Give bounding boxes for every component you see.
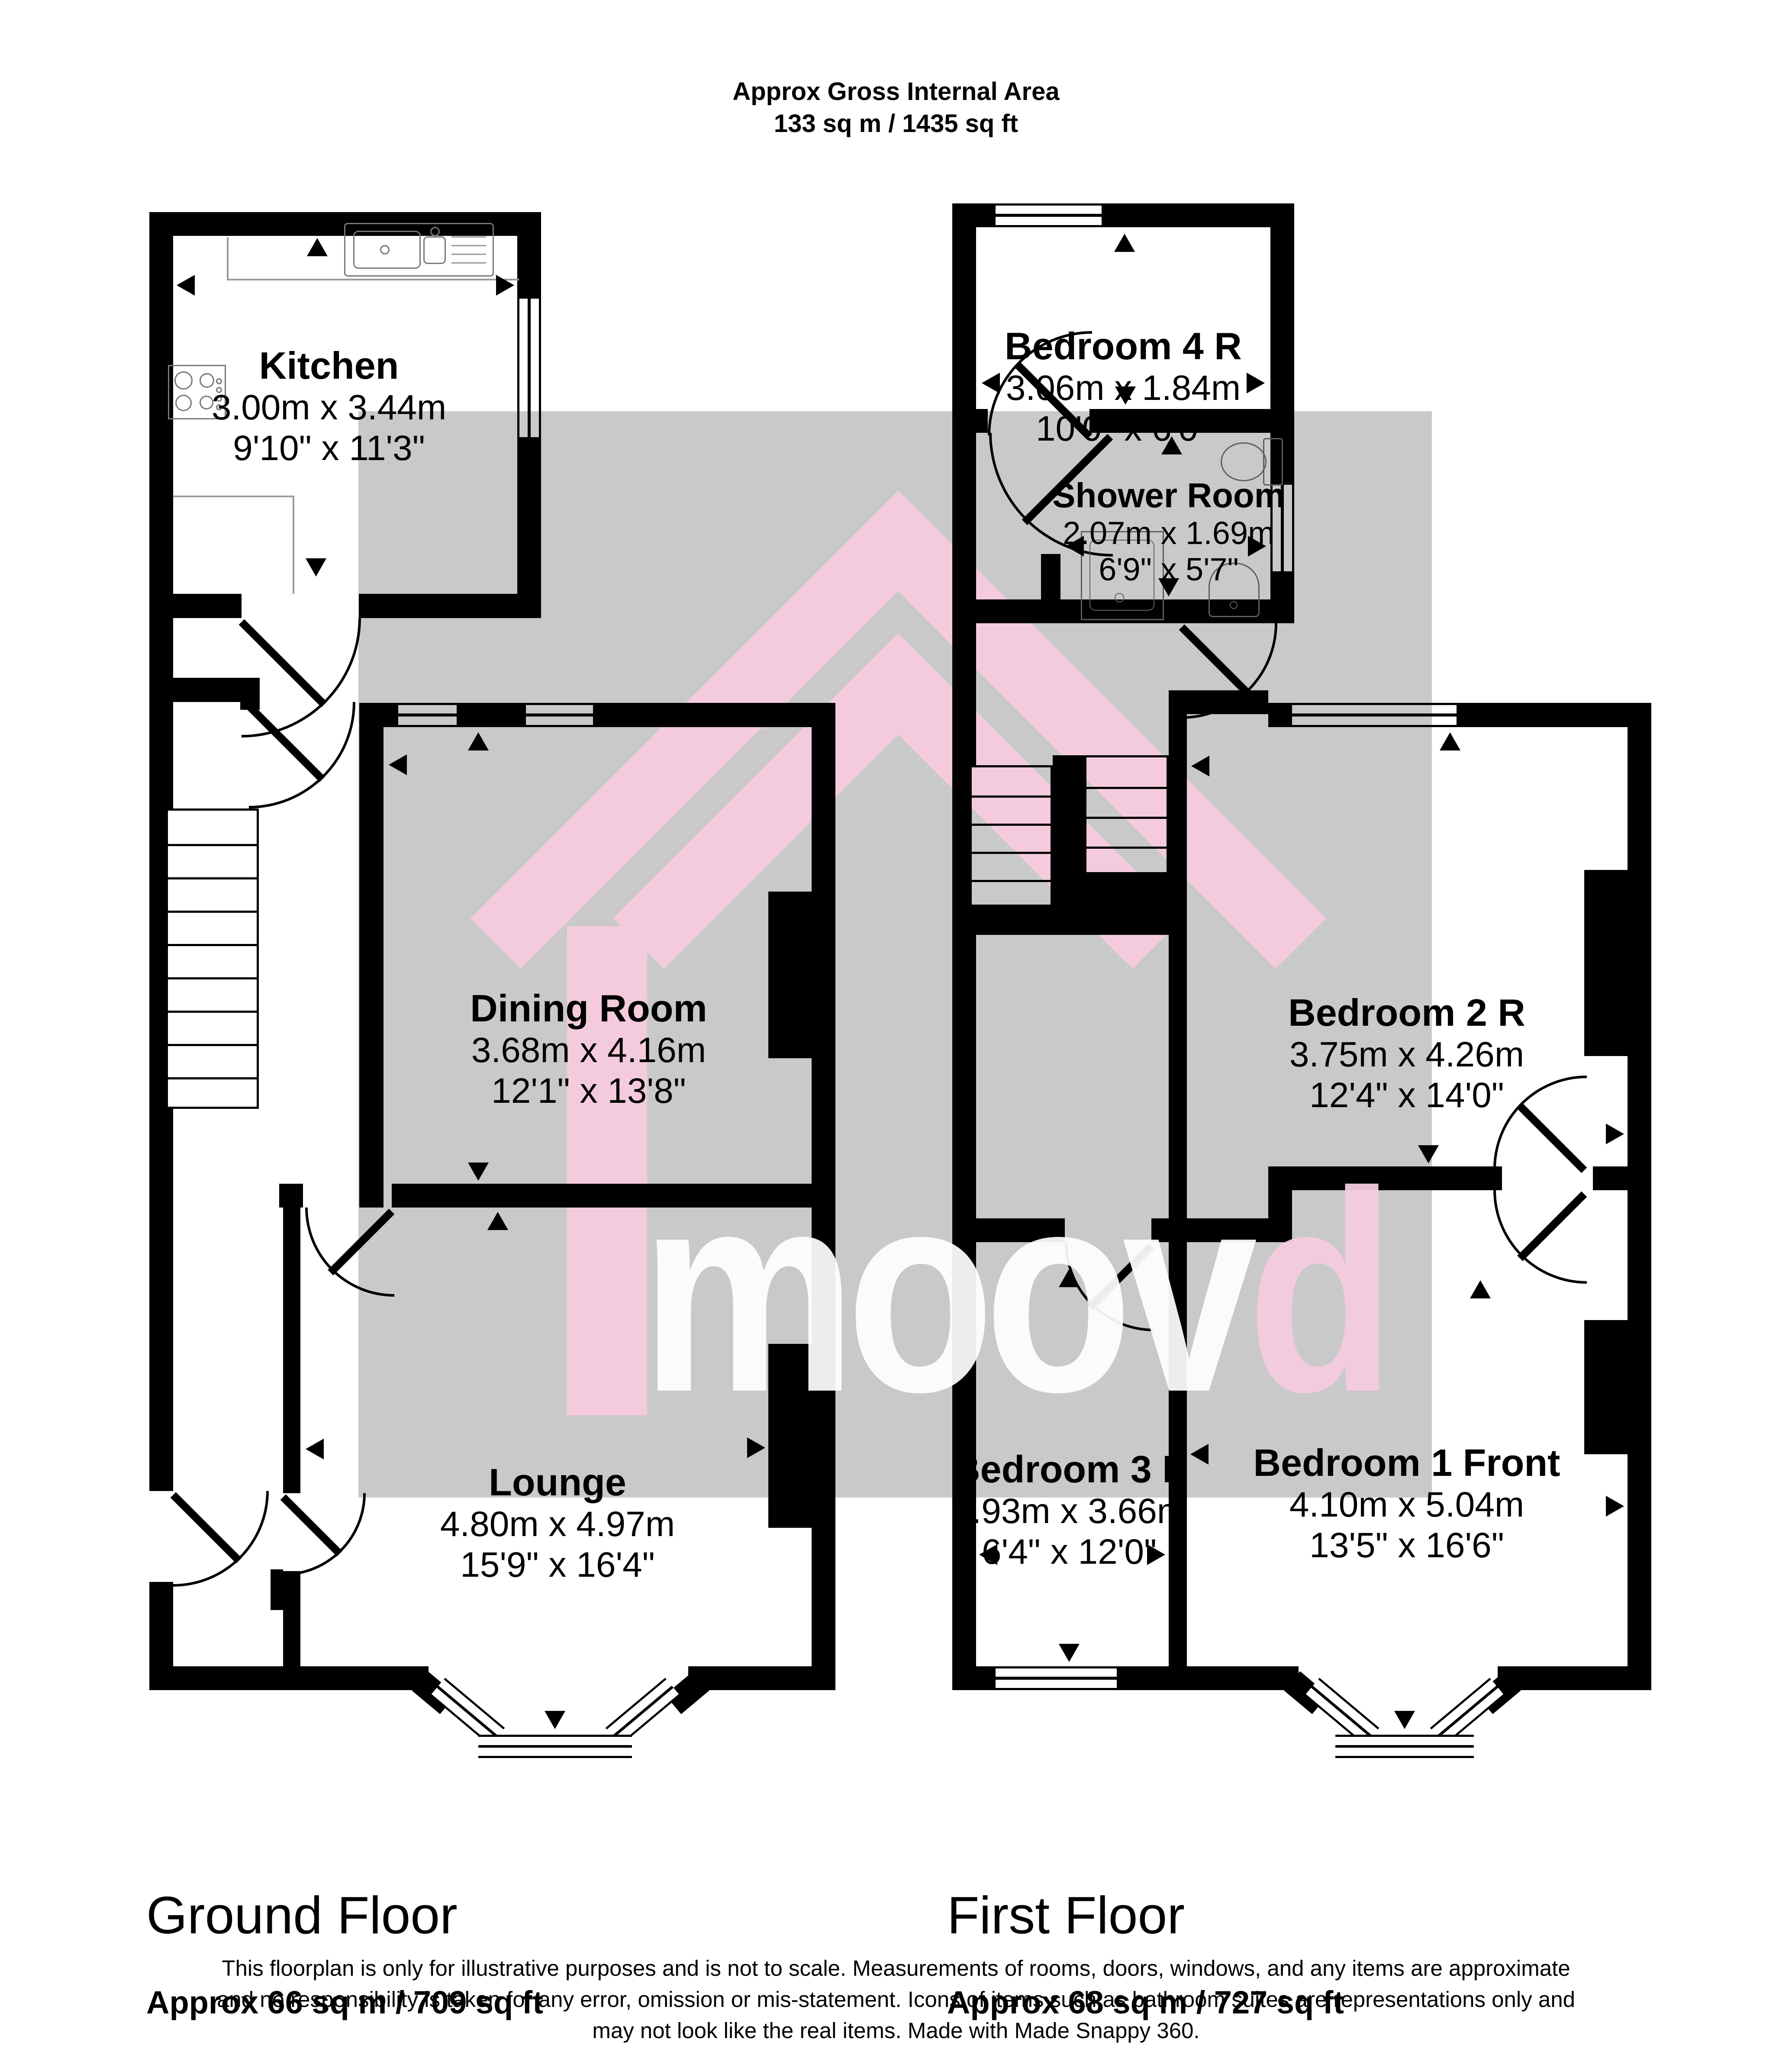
wall <box>384 703 398 727</box>
room-dims-metric: 4.10m x 5.04m <box>1169 1485 1645 1525</box>
measure-arrow-right <box>790 963 809 984</box>
measure-arrow-left <box>1191 756 1209 776</box>
wall <box>952 1666 996 1690</box>
wall <box>952 203 996 227</box>
stair-tread <box>1086 787 1167 789</box>
stair-tread <box>972 796 1051 798</box>
floorplan-canvas: Approx Gross Internal Area 133 sq m / 14… <box>0 0 1792 2058</box>
stair-tread <box>168 977 257 979</box>
measure-arrow-left <box>177 275 195 296</box>
stair-tread <box>1086 817 1167 819</box>
room-label-shower-room: Shower Room 2.07m x 1.69m 6'9" x 5'7" <box>931 476 1407 588</box>
stair-tread <box>972 880 1051 882</box>
gross-area-value: 133 sq m / 1435 sq ft <box>0 108 1792 140</box>
chimney-breast <box>1584 1320 1628 1454</box>
room-dims-imperial: 12'1" x 13'8" <box>351 1071 827 1111</box>
sink-drain <box>380 245 390 254</box>
disclaimer-line-3: may not look like the real items. Made w… <box>0 2015 1792 2046</box>
bay-window <box>1335 1735 1474 1758</box>
room-dims-imperial: 9'10" x 11'3" <box>91 428 567 469</box>
measure-arrow-left <box>306 1439 324 1459</box>
wall <box>359 703 384 1208</box>
window <box>996 1666 1117 1690</box>
stairs-first-floor-left-flight <box>970 765 1053 907</box>
drainer-line <box>451 245 486 246</box>
stair-tread <box>168 944 257 946</box>
stair-tread <box>168 1044 257 1046</box>
wall <box>517 212 541 299</box>
measure-arrow-down <box>1059 1644 1080 1662</box>
measure-arrow-right <box>1606 1124 1624 1144</box>
wall <box>1498 1666 1651 1690</box>
stair-tread <box>168 1011 257 1013</box>
room-label-dining-room: Dining Room 3.68m x 4.16m 12'1" x 13'8" <box>351 987 827 1111</box>
room-dims-metric: 2.07m x 1.69m <box>931 515 1407 551</box>
room-name: Kitchen <box>91 344 567 387</box>
counter-line <box>227 237 229 280</box>
wall <box>392 1184 835 1208</box>
disclaimer-line-2: and no responsibility is taken for any e… <box>0 1984 1792 2015</box>
first-floor-label: First Floor <box>947 1887 1185 1943</box>
sink-icon <box>344 223 494 277</box>
measure-arrow-left <box>389 754 407 775</box>
room-name: Dining Room <box>351 987 827 1030</box>
measure-arrow-down <box>1394 1711 1415 1729</box>
measure-arrow-down <box>545 1711 565 1729</box>
measure-arrow-up <box>307 238 328 256</box>
disclaimer: This floorplan is only for illustrative … <box>0 1953 1792 2046</box>
window <box>996 203 1102 227</box>
wall <box>1117 1666 1169 1690</box>
ground-floor-label: Ground Floor <box>146 1887 458 1943</box>
stair-tread <box>1086 847 1167 849</box>
room-dims-imperial: 6'9" x 5'7" <box>931 551 1407 588</box>
sink-half-bowl <box>423 236 446 264</box>
room-label-bedroom-1: Bedroom 1 Front 4.10m x 5.04m 13'5" x 16… <box>1169 1441 1645 1566</box>
window <box>526 703 593 727</box>
measure-arrow-down <box>468 1163 489 1181</box>
room-name: Bedroom 1 Front <box>1169 1441 1645 1485</box>
wall <box>593 703 812 727</box>
stair-tread <box>168 877 257 879</box>
stair-tread <box>168 911 257 913</box>
counter-line <box>293 496 294 594</box>
wall <box>1268 1166 1502 1190</box>
disclaimer-line-1: This floorplan is only for illustrative … <box>0 1953 1792 1984</box>
stairs-ground-floor <box>166 808 259 1109</box>
stairs-first-floor-right-flight <box>1084 755 1169 874</box>
wall <box>149 1666 429 1690</box>
measure-arrow-up <box>1470 1280 1491 1298</box>
counter-line <box>227 279 519 280</box>
drainer-line <box>451 236 486 238</box>
door-post <box>271 1569 283 1610</box>
wall <box>359 594 541 618</box>
wall <box>1151 1218 1268 1242</box>
window <box>1292 703 1457 727</box>
shower-drain <box>1115 593 1124 602</box>
wall <box>283 1571 300 1666</box>
room-dims-metric: 4.80m x 4.97m <box>319 1504 796 1545</box>
gross-area-title: Approx Gross Internal Area <box>0 76 1792 108</box>
tap-icon <box>430 227 440 236</box>
stair-tread <box>168 1077 257 1079</box>
room-name: Shower Room <box>931 476 1407 515</box>
room-label-lounge: Lounge 4.80m x 4.97m 15'9" x 16'4" <box>319 1461 796 1585</box>
wall <box>1102 203 1294 227</box>
wall <box>1457 703 1651 727</box>
room-dims-imperial: 13'5" x 16'6" <box>1169 1525 1645 1566</box>
drainer-line <box>451 254 486 255</box>
room-name: Bedroom 4 R <box>885 325 1361 368</box>
wall <box>149 678 240 702</box>
bay-window <box>478 1735 632 1758</box>
stair-tread <box>972 852 1051 854</box>
room-dims-metric: 3.68m x 4.16m <box>351 1030 827 1071</box>
wall <box>279 1184 303 1208</box>
wall <box>1187 1666 1299 1690</box>
room-dims-metric: 3.06m x 1.84m <box>885 368 1361 409</box>
room-dims-imperial: 15'9" x 16'4" <box>319 1545 796 1585</box>
wall <box>1593 1166 1651 1190</box>
wall <box>688 1666 835 1690</box>
counter-line <box>173 496 294 497</box>
room-label-bedroom-2: Bedroom 2 R 3.75m x 4.26m 12'4" x 14'0" <box>1169 991 1645 1116</box>
wall <box>1268 703 1292 727</box>
basin-drain <box>1230 601 1238 609</box>
measure-arrow-up <box>468 732 489 750</box>
stair-tread <box>168 844 257 846</box>
room-dims-metric: 3.00m x 3.44m <box>91 387 567 428</box>
measure-arrow-up <box>1059 1269 1080 1287</box>
room-label-kitchen: Kitchen 3.00m x 3.44m 9'10" x 11'3" <box>91 344 567 469</box>
room-dims-metric: 3.75m x 4.26m <box>1169 1034 1645 1075</box>
room-name: Bedroom 2 R <box>1169 991 1645 1034</box>
measure-arrow-up <box>487 1212 508 1230</box>
room-dims-imperial: 12'4" x 14'0" <box>1169 1075 1645 1116</box>
wall <box>457 703 526 727</box>
wall <box>952 1218 1065 1242</box>
page-title: Approx Gross Internal Area 133 sq m / 14… <box>0 76 1792 140</box>
wall <box>1169 697 1187 1242</box>
stair-tread <box>972 824 1051 826</box>
measure-arrow-down <box>306 558 326 576</box>
room-dims-imperial: 10'0" x 6'0" <box>885 409 1361 449</box>
drainer-line <box>451 262 486 264</box>
stair-divider <box>1053 755 1084 935</box>
measure-arrow-up <box>1440 732 1460 750</box>
measure-arrow-down <box>1418 1145 1439 1163</box>
wall <box>1268 1166 1292 1242</box>
room-label-bedroom-4: Bedroom 4 R 3.06m x 1.84m 10'0" x 6'0" <box>885 325 1361 449</box>
wall <box>149 594 242 618</box>
measure-arrow-right <box>747 1437 765 1458</box>
stair-landing-mass <box>970 907 1053 935</box>
stair-landing-mass <box>1084 874 1169 935</box>
room-name: Lounge <box>319 1461 796 1504</box>
window <box>398 703 457 727</box>
measure-arrow-up <box>1114 234 1135 252</box>
wall <box>283 1208 300 1493</box>
watermark-word-main: moov <box>641 1132 1247 1451</box>
measure-arrow-right <box>496 275 514 296</box>
